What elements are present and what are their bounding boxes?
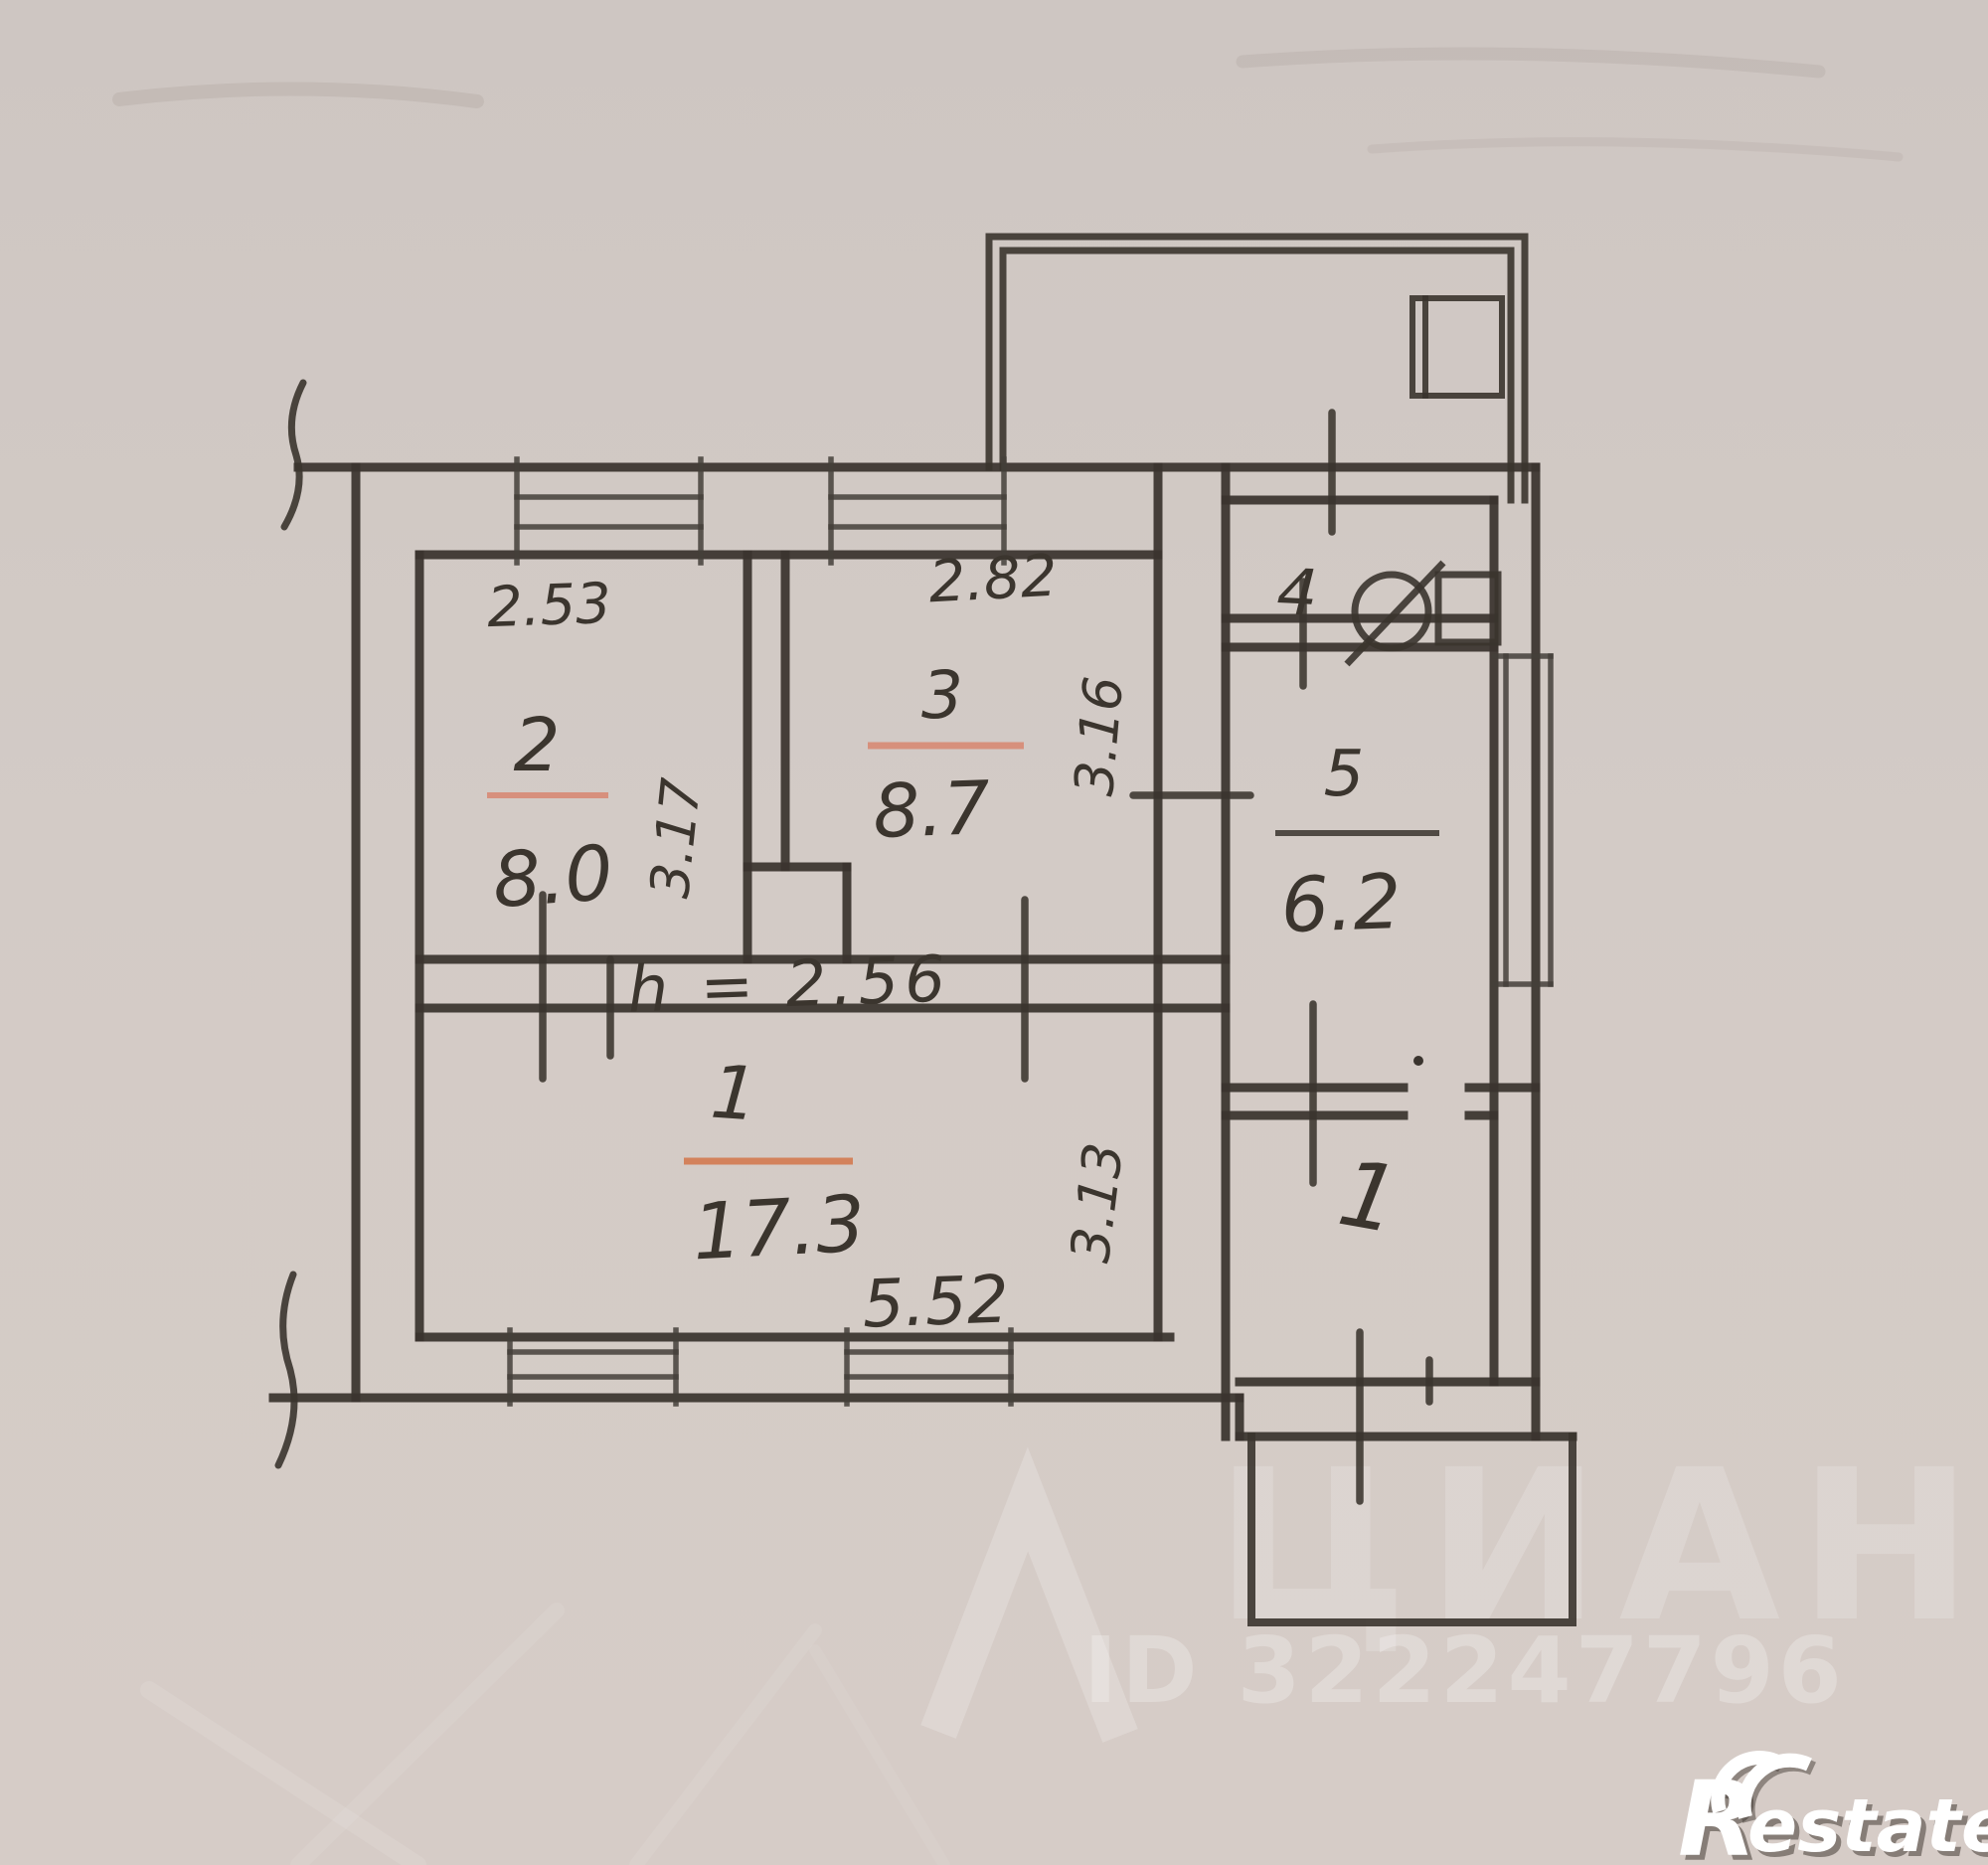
ceiling-height-label: h = 2.56 [626, 942, 952, 1027]
room1-number: 1 [708, 1050, 760, 1138]
floor-plan-scan: ЦИАН ID 322247796 [0, 0, 1988, 1865]
cian-listing-id: ID 322247796 [1083, 1617, 1846, 1724]
room3-depth-label: 3.16 [1063, 674, 1135, 798]
room1-area: 17.3 [691, 1180, 868, 1278]
restate-logo-initial: R [1678, 1759, 1757, 1865]
room5-area: 6.2 [1279, 857, 1403, 949]
restate-logo-text: estate [1747, 1783, 1988, 1865]
floor-plan-canvas: ЦИАН ID 322247796 [0, 0, 1988, 1865]
room2-depth-label: 3.17 [638, 775, 713, 901]
room2-number: 2 [513, 703, 560, 788]
room4-number: 4 [1275, 556, 1320, 631]
door-swing-dot [1413, 1056, 1423, 1066]
room3-width-label: 2.82 [927, 542, 1060, 616]
room2-area: 8.0 [490, 828, 616, 925]
room3-area: 8.7 [872, 765, 992, 855]
room2-width-label: 2.53 [486, 572, 612, 640]
room1-width-label: 5.52 [861, 1261, 1010, 1342]
room5-number: 5 [1324, 738, 1365, 811]
room3-number: 3 [921, 657, 963, 734]
